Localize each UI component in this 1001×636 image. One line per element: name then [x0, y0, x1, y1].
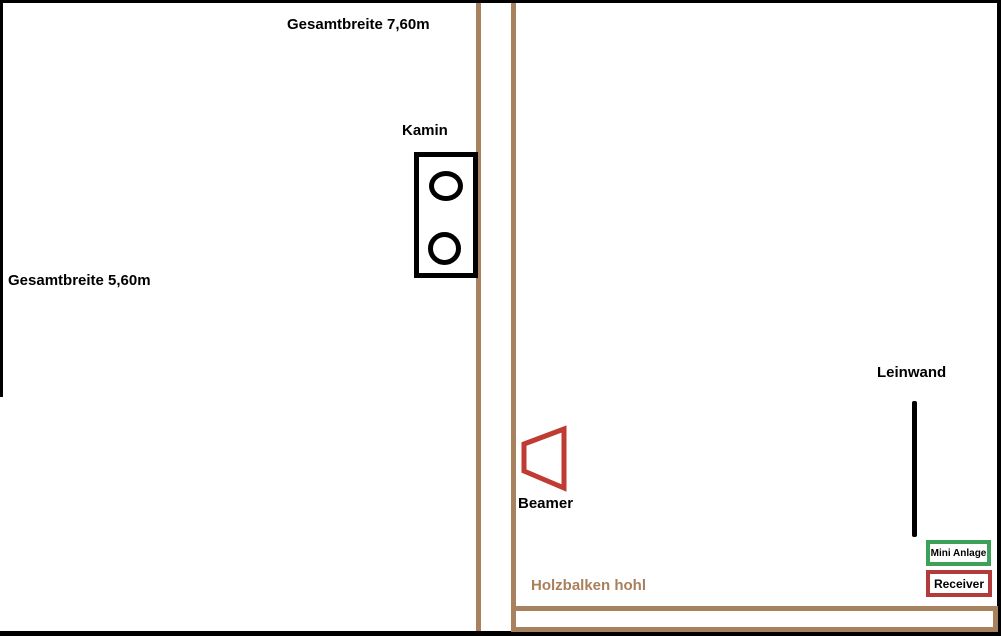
- label-total-width-left: Gesamtbreite 5,60m: [8, 273, 151, 288]
- mini-anlage-box: Mini Anlage: [926, 540, 991, 566]
- outer-wall-left: [0, 0, 3, 397]
- outer-wall-right: [997, 0, 1001, 636]
- floor-plan: Gesamtbreite 7,60m Gesamtbreite 5,60m Ka…: [0, 0, 1001, 636]
- label-holzbalken: Holzbalken hohl: [531, 578, 646, 593]
- leinwand-symbol: [912, 401, 917, 537]
- label-leinwand: Leinwand: [877, 365, 946, 380]
- interior-wall-left: [476, 3, 481, 631]
- receiver-box: Receiver: [926, 570, 992, 597]
- mini-anlage-label: Mini Anlage: [931, 548, 987, 559]
- receiver-label: Receiver: [934, 577, 984, 591]
- label-beamer: Beamer: [518, 496, 573, 511]
- label-total-width-top: Gesamtbreite 7,60m: [287, 17, 430, 32]
- kamin-symbol: [414, 152, 478, 278]
- interior-wall-right: [511, 3, 516, 631]
- kamin-ring-bottom: [428, 232, 461, 265]
- beamer-symbol: [515, 420, 575, 498]
- outer-wall-top: [0, 0, 1001, 3]
- label-kamin: Kamin: [402, 123, 448, 138]
- kamin-ring-top: [429, 171, 463, 201]
- holzbalken-beam: [511, 606, 998, 632]
